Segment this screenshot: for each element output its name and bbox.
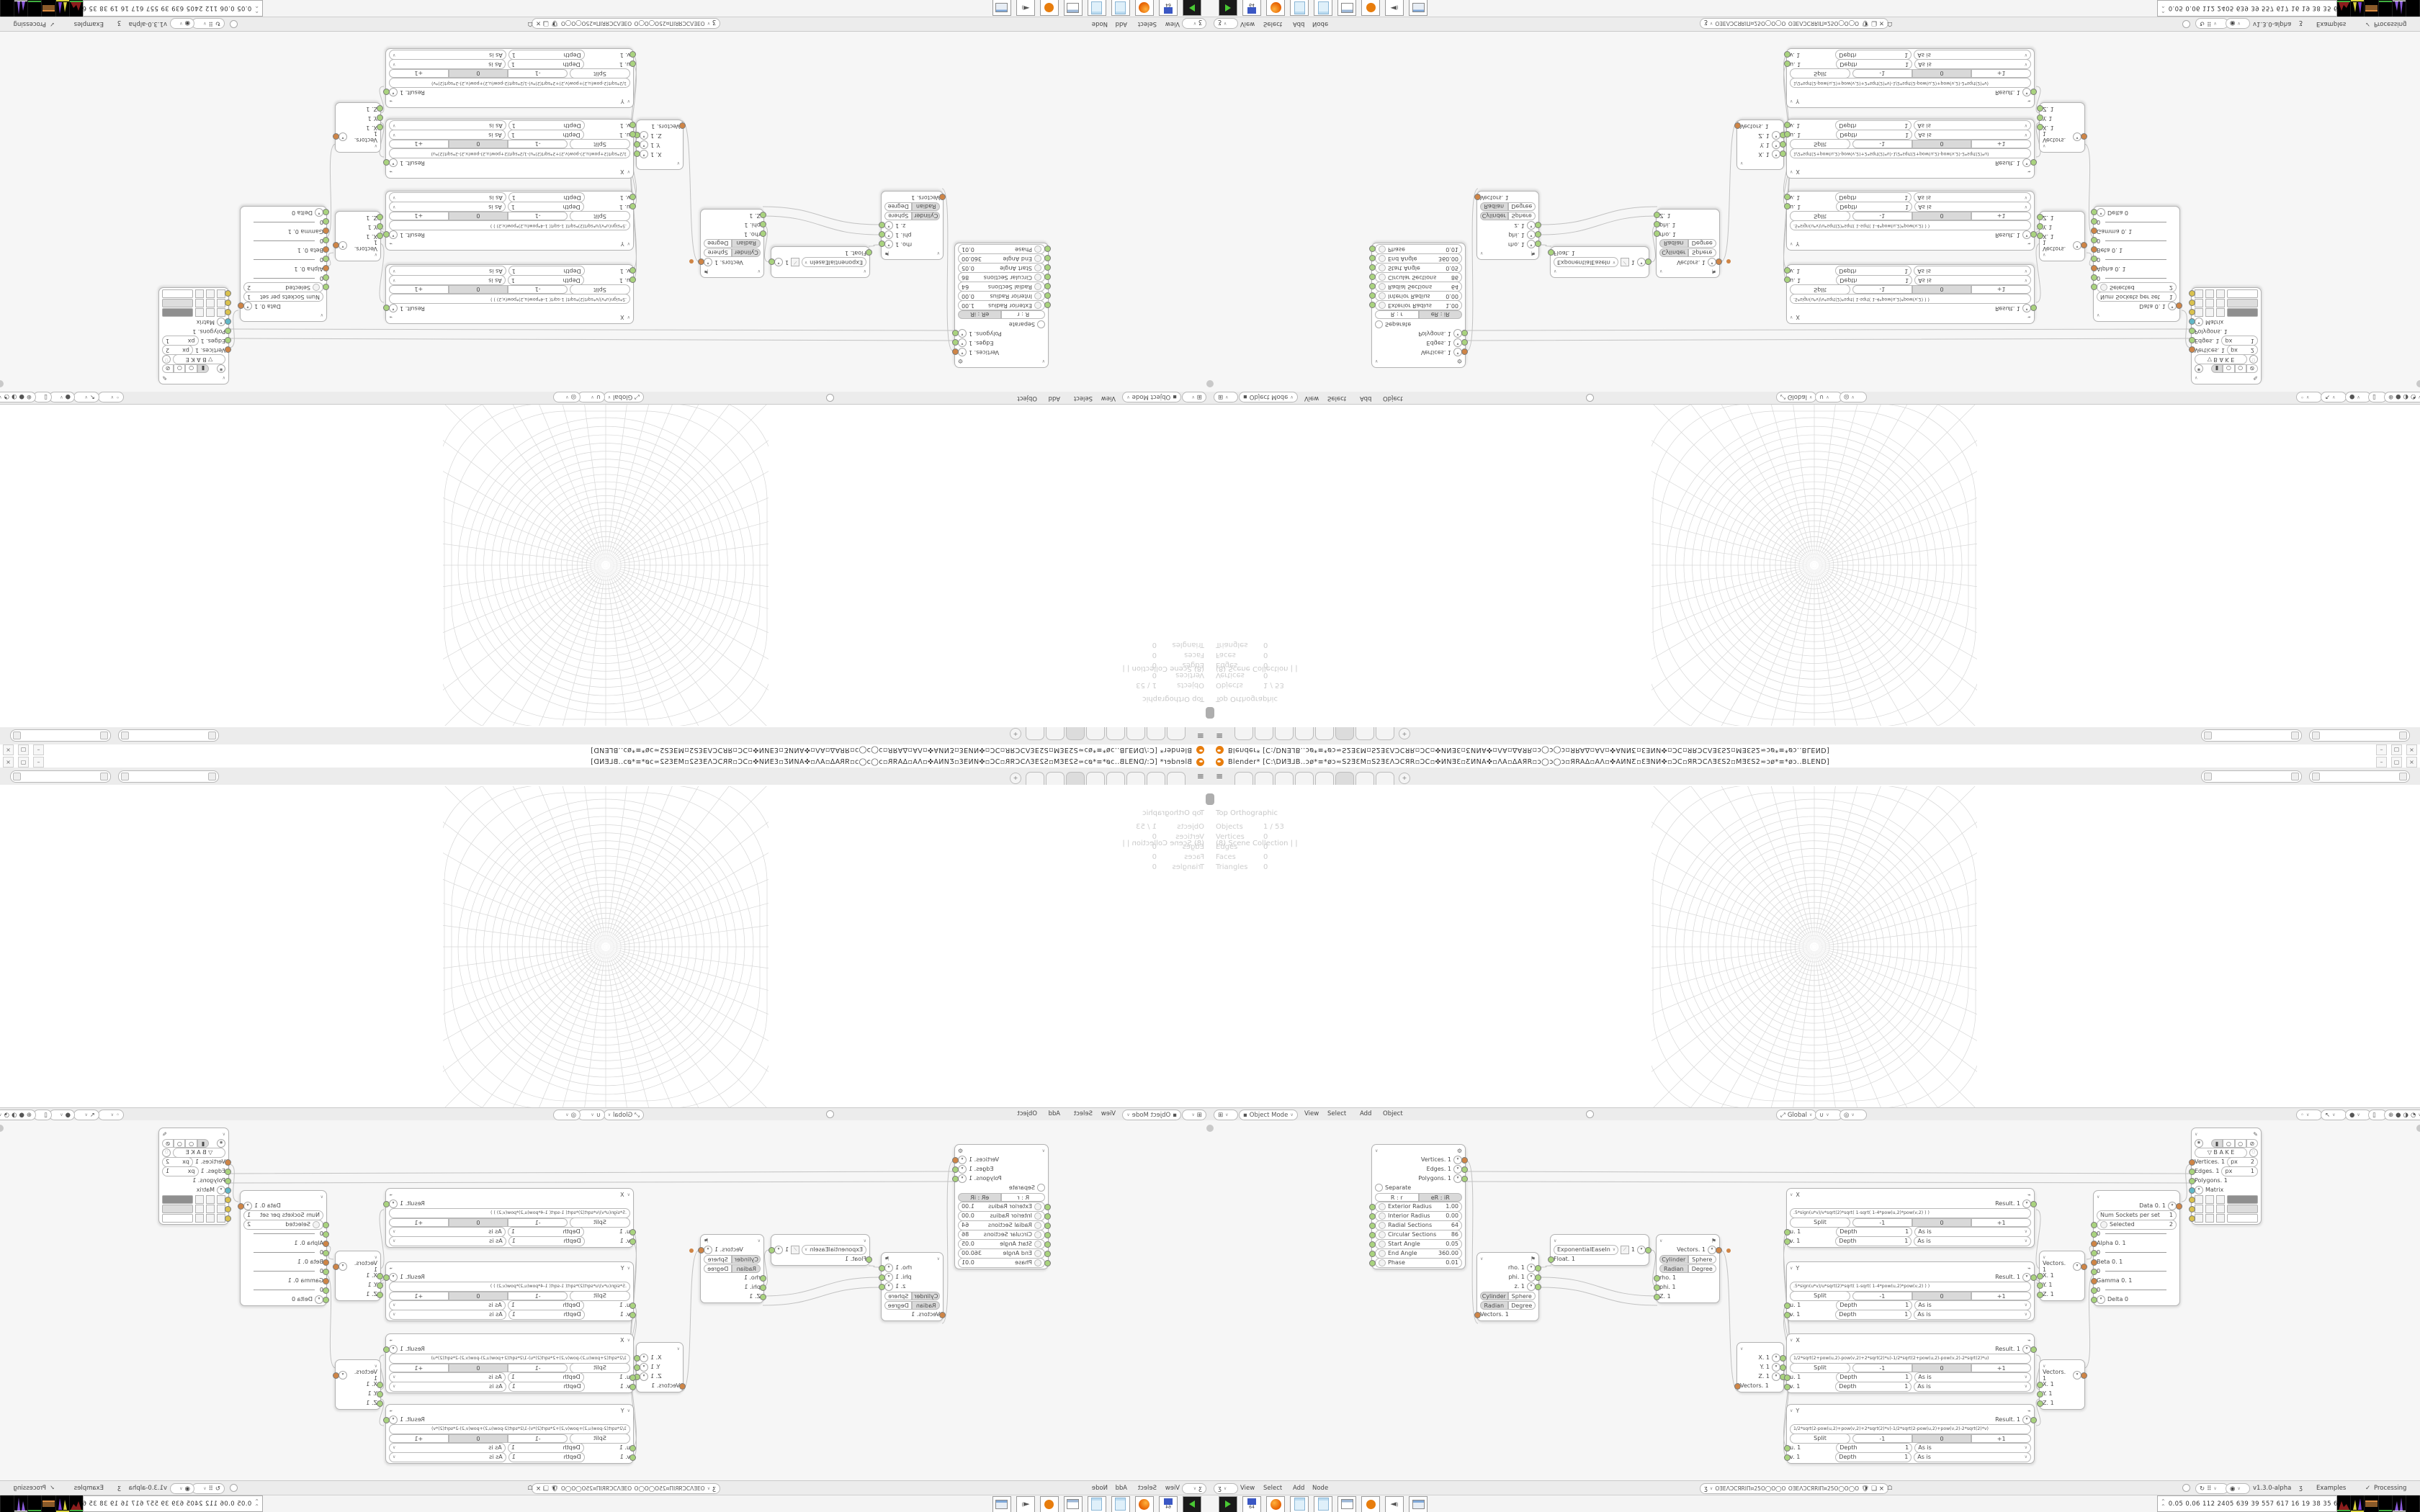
segment-button[interactable]: Sphere — [1508, 212, 1536, 221]
input-socket[interactable] — [629, 276, 636, 283]
node-menu-view[interactable]: View — [1165, 20, 1180, 27]
display-toggle-button[interactable]: ▮ — [2211, 1139, 2223, 1148]
flag-icon[interactable]: ⚑ — [704, 269, 709, 275]
depth-field[interactable]: Depth1 — [508, 276, 584, 286]
as-is-selector[interactable]: As is∨ — [1914, 1382, 2031, 1392]
vector-out-node[interactable]: ∨X. 1▾Y. 1▾Z. 1▾Vectors. 1 — [1736, 1342, 1784, 1392]
input-socket[interactable] — [1784, 1445, 1791, 1452]
number-field[interactable]: Radial Sections64 — [1375, 1220, 1462, 1230]
segment-button[interactable]: Cylinder — [732, 249, 761, 258]
node-menu-node[interactable]: Node — [1312, 20, 1328, 27]
socket-dropdown[interactable]: ▾ — [640, 150, 648, 159]
torus-node[interactable]: ∨⚙Vertices. 1▾Edges. 1▾Polygons. 1▾Separ… — [1371, 243, 1466, 368]
number-field[interactable]: Interior Radius0.00 — [958, 292, 1045, 302]
polygon-color-bar[interactable] — [162, 1214, 193, 1223]
fake-user-icon[interactable]: 🛡 — [551, 1485, 559, 1493]
as-is-selector[interactable]: As is∨ — [1914, 1443, 2031, 1453]
node-tree-selector[interactable]: ʒ∨OƎEΛƆCЯRIΠ¤25O◯O◯O25¤ΠIЯRƆΛƎEOOƎEΛƆCЯR… — [532, 18, 720, 29]
duplicate-icon[interactable]: ❏ — [543, 20, 549, 27]
input-socket[interactable] — [1654, 1284, 1660, 1291]
wrench-icon[interactable]: ⌁ — [2027, 1337, 2031, 1344]
pencil-icon[interactable]: ✎ — [2253, 375, 2258, 382]
easing-node[interactable]: ∨ExponentialEaseIn∨⟋1▾Float. 1 — [771, 246, 870, 278]
input-socket[interactable] — [939, 1312, 946, 1318]
media-player-icon[interactable] — [1183, 1496, 1201, 1512]
segment-button[interactable]: 0 — [1912, 70, 1972, 78]
segment-button[interactable]: Degree — [704, 1264, 732, 1273]
style-cell[interactable] — [206, 1214, 215, 1223]
selected-field[interactable]: Selected2 — [243, 283, 323, 293]
socket-dropdown[interactable]: ▾ — [884, 240, 893, 249]
socket-dropdown[interactable]: ▾ — [389, 1416, 398, 1424]
as-is-selector[interactable]: As is∨ — [389, 1372, 506, 1382]
socket-dropdown[interactable]: ▾ — [2195, 1186, 2203, 1194]
segment-button[interactable]: eR : iR — [1419, 1193, 1463, 1202]
segmented-buttons[interactable]: R : reR : iR — [958, 1193, 1045, 1202]
output-socket[interactable] — [1535, 1265, 1541, 1272]
curve-cell[interactable] — [2216, 1205, 2225, 1213]
vector-polar-input-node[interactable]: ∨⚑Vectors. 1▾CylinderSphereRadianDegreer… — [700, 209, 764, 278]
number-field[interactable]: Exterior Radius1.00 — [958, 301, 1045, 311]
output-socket[interactable] — [2030, 231, 2037, 238]
close-button[interactable]: × — [3, 757, 14, 768]
vector-in-node[interactable]: ∨Vectors. 1▾X. 1Y. 1Z. 1 — [335, 1251, 381, 1301]
as-is-selector[interactable]: As is∨ — [389, 1300, 506, 1310]
as-is-selector[interactable]: As is∨ — [1914, 1452, 2031, 1462]
segment-button[interactable]: Degree — [1688, 240, 1717, 248]
output-socket[interactable] — [952, 1157, 959, 1164]
formula-input-field[interactable]: 1/2*sqrt(2-pow(u,2)+pow(v,2)+2*sqrt(2)*v… — [389, 1424, 630, 1434]
input-socket[interactable] — [323, 1259, 329, 1266]
image-viewer-icon[interactable] — [1337, 1496, 1356, 1512]
minimize-button[interactable]: – — [33, 757, 44, 768]
display-toggles[interactable]: ▮○○⊘ — [162, 1139, 209, 1148]
as-is-selector[interactable]: As is∨ — [389, 202, 506, 212]
duplicate-icon[interactable]: ❏ — [1871, 1485, 1877, 1493]
output-socket[interactable] — [1461, 1157, 1468, 1164]
formula-input-field[interactable]: 1/2*sqrt(2-pow(u,2)+pow(v,2)+2*sqrt(2)*v… — [389, 78, 630, 89]
num-sockets-field[interactable]: Num Sockets per set1 — [2097, 292, 2177, 302]
input-socket[interactable] — [323, 1231, 329, 1238]
input-socket[interactable] — [377, 223, 383, 230]
node-header[interactable]: ∨⚙ — [958, 357, 1045, 366]
display-toggle-button[interactable]: ⊘ — [2246, 1139, 2258, 1148]
depth-field[interactable]: Depth1 — [1836, 1227, 1912, 1237]
vector-polar-input-node[interactable]: ∨⚑Vectors. 1▾CylinderSphereRadianDegreer… — [700, 1234, 764, 1303]
socket-dropdown[interactable]: ▾ — [339, 242, 347, 251]
as-is-selector[interactable]: As is∨ — [1914, 121, 2031, 131]
bake-settings-button[interactable]: ◌ — [2249, 356, 2258, 364]
segment-button[interactable]: -1 — [508, 1434, 568, 1443]
input-socket[interactable] — [1784, 1229, 1791, 1236]
px-field[interactable]: px2 — [162, 346, 193, 356]
formula-node[interactable]: ∨X⌁Result. 1▾1/2*sqrt(2+pow(u,2)-pow(v,2… — [385, 1333, 634, 1393]
style-cell[interactable] — [2205, 290, 2214, 299]
number-field[interactable]: Circular Sections86 — [958, 273, 1045, 283]
output-socket[interactable] — [879, 231, 885, 238]
eye-toggle[interactable]: ◉ — [217, 1139, 225, 1148]
socket-dropdown[interactable]: ▾ — [958, 330, 967, 338]
socket-dropdown[interactable]: ▾ — [389, 159, 398, 168]
notepad-icon[interactable] — [1111, 1496, 1130, 1512]
socket-dropdown[interactable]: ▾ — [958, 348, 967, 357]
notepad-icon[interactable] — [1314, 1496, 1332, 1512]
node-header[interactable]: ∨ — [1740, 159, 1780, 168]
formula-input-field[interactable]: 1/2*sqrt(2+pow(u,2)-pow(v,2)+2*sqrt(2)*u… — [1790, 149, 2031, 159]
input-socket[interactable] — [1044, 1251, 1051, 1257]
fake-user-icon[interactable]: 🛡 — [1861, 1485, 1869, 1493]
node-header[interactable]: ∨⚑ — [704, 267, 761, 276]
number-field[interactable]: Circular Sections86 — [1375, 1230, 1462, 1240]
clamp-segments[interactable]: -10+1 — [389, 70, 568, 78]
segmented-buttons[interactable]: RadianDegree — [1659, 240, 1716, 248]
display-toggle-button[interactable]: ⊘ — [162, 365, 174, 374]
depth-field[interactable]: Depth1 — [1836, 130, 1912, 140]
input-socket[interactable] — [629, 267, 636, 274]
vector-in-node[interactable]: ∨Vectors. 1▾X. 1Y. 1Z. 1 — [335, 211, 381, 261]
blender-app-icon[interactable] — [1361, 1496, 1380, 1512]
style-cell[interactable] — [2205, 1205, 2214, 1213]
number-field[interactable]: Exterior Radius1.00 — [1375, 301, 1462, 311]
style-cell[interactable] — [206, 290, 215, 299]
color-socket[interactable] — [2189, 1215, 2195, 1222]
workspace-tab[interactable] — [1335, 772, 1354, 785]
formula-input-field[interactable]: .5*sign(u*v)/u*sqrt(2)*sqrt( 1-sqrt( 1-4… — [389, 221, 630, 231]
number-field[interactable]: Radial Sections64 — [958, 1220, 1045, 1230]
node-menu-select[interactable]: Select — [1138, 1485, 1157, 1492]
output-socket[interactable] — [383, 1417, 390, 1423]
node-header[interactable]: ∨⚑ — [884, 249, 940, 258]
display-toggle-button[interactable]: ○ — [186, 365, 197, 374]
node-header[interactable]: ∨ — [2097, 1192, 2177, 1201]
depth-field[interactable]: Depth1 — [508, 202, 584, 212]
workspace-tab[interactable] — [1066, 727, 1085, 740]
input-socket[interactable] — [1044, 283, 1051, 289]
edge-color-bar[interactable] — [162, 1195, 193, 1204]
segment-button[interactable]: +1 — [389, 286, 449, 294]
segment-button[interactable]: Degree — [1688, 1264, 1717, 1273]
vector-polar-output-node[interactable]: ∨⚑rho. 1▾phi. 1▾z. 1▾CylinderSphereRadia… — [881, 191, 944, 260]
input-socket[interactable] — [2091, 228, 2097, 234]
scene-selector[interactable] — [118, 729, 219, 742]
px-field[interactable]: px1 — [2221, 1166, 2258, 1176]
input-socket[interactable] — [629, 1454, 636, 1461]
output-socket[interactable] — [879, 1284, 885, 1290]
node-editor[interactable]: ∨⚙Vertices. 1▾Edges. 1▾Polygons. 1▾Separ… — [1210, 32, 2420, 392]
gear-icon[interactable]: ⚙ — [1457, 1148, 1462, 1154]
px-field[interactable]: px2 — [2227, 1157, 2258, 1167]
input-socket[interactable] — [2037, 1282, 2043, 1289]
vertex-color-bar[interactable] — [2227, 300, 2258, 308]
bake-button[interactable]: ▽ B A K E — [173, 1148, 225, 1158]
socket-dropdown[interactable]: ▾ — [958, 1174, 967, 1183]
scene-selector[interactable] — [2201, 729, 2302, 742]
workspace-tab[interactable] — [1234, 727, 1253, 740]
split-button[interactable]: Split — [1790, 1218, 1850, 1228]
node-menu-add[interactable]: Add — [1293, 20, 1304, 27]
display-toggle-button[interactable]: ▮ — [2211, 365, 2223, 374]
edge-color-bar[interactable] — [2227, 309, 2258, 318]
as-is-selector[interactable]: As is∨ — [389, 1443, 506, 1453]
wrench-icon[interactable]: ⌁ — [389, 1265, 393, 1272]
node-header[interactable]: ∨ — [640, 159, 680, 168]
segmented-buttons[interactable]: RadianDegree — [1659, 1264, 1716, 1273]
shading-mode-group[interactable]: ⊕●◑◔∨ — [0, 392, 36, 402]
node-menu-add[interactable]: Add — [1116, 1485, 1127, 1492]
output-socket[interactable] — [1645, 258, 1652, 265]
segment-button[interactable]: +1 — [389, 140, 449, 149]
output-socket[interactable] — [698, 1247, 704, 1254]
gear-icon[interactable]: ⚙ — [958, 359, 963, 365]
as-is-selector[interactable]: As is∨ — [1914, 276, 2031, 286]
style-cell[interactable] — [2205, 309, 2214, 318]
segment-button[interactable]: 0 — [1912, 1364, 1972, 1372]
as-is-selector[interactable]: As is∨ — [389, 121, 506, 131]
segmented-buttons[interactable]: CylinderSphere — [704, 1255, 761, 1264]
output-socket[interactable] — [333, 133, 339, 140]
input-socket[interactable] — [629, 1384, 636, 1390]
workspace-tab[interactable] — [1026, 772, 1044, 785]
input-socket[interactable] — [1784, 51, 1791, 58]
workspace-tab[interactable] — [1295, 772, 1314, 785]
editor-corner-widget[interactable] — [2416, 380, 2420, 387]
as-is-selector[interactable]: As is∨ — [1914, 1310, 2031, 1320]
input-socket[interactable] — [377, 1282, 383, 1289]
input-socket[interactable] — [1044, 255, 1051, 261]
segment-button[interactable]: 0 — [1912, 212, 1972, 221]
volume-icon[interactable]: ◄) — [1385, 0, 1404, 16]
sphere-widget[interactable] — [1586, 1110, 1594, 1118]
input-socket[interactable] — [2091, 265, 2097, 271]
input-socket[interactable] — [2189, 318, 2195, 325]
close-button[interactable]: × — [2406, 744, 2417, 755]
explorer-icon[interactable] — [1409, 0, 1428, 16]
formula-input-field[interactable]: 1/2*sqrt(2+pow(u,2)-pow(v,2)+2*sqrt(2)*u… — [1790, 1354, 2031, 1364]
socket-dropdown[interactable]: ▾ — [2097, 1295, 2105, 1304]
media-player-icon[interactable] — [1183, 0, 1201, 16]
clamp-segments[interactable]: -10+1 — [389, 1218, 568, 1227]
input-socket[interactable] — [323, 1278, 329, 1284]
number-field[interactable]: Start Angle0.05 — [958, 1239, 1045, 1249]
depth-field[interactable]: Depth1 — [508, 60, 584, 70]
input-socket[interactable] — [629, 1312, 636, 1318]
segment-button[interactable]: 0 — [1912, 1292, 1972, 1300]
segment-button[interactable]: Sphere — [1688, 1255, 1717, 1264]
pin-icon[interactable]: ☖ — [527, 1485, 533, 1492]
pin-icon[interactable]: ☖ — [527, 20, 533, 27]
workspace-tab[interactable] — [1147, 772, 1165, 785]
polygon-color-bar[interactable] — [2227, 290, 2258, 299]
firefox-icon[interactable] — [1266, 1496, 1285, 1512]
segment-button[interactable]: -1 — [508, 140, 568, 149]
output-socket[interactable] — [1535, 1274, 1541, 1281]
segment-button[interactable]: +1 — [389, 1434, 449, 1443]
segmented-buttons[interactable]: CylinderSphere — [884, 212, 940, 221]
viewport-menu-select[interactable]: Select — [1327, 395, 1346, 402]
input-socket[interactable] — [2189, 346, 2195, 353]
clamp-segments[interactable]: -10+1 — [1852, 1292, 2031, 1300]
edge-color-bar[interactable] — [162, 309, 193, 318]
input-socket[interactable] — [2091, 1269, 2097, 1275]
segment-button[interactable]: R : r — [1002, 1193, 1046, 1202]
firefox-icon[interactable] — [1135, 1496, 1154, 1512]
gizmo-selector[interactable]: ◦∨ — [98, 1110, 124, 1120]
data-input-node[interactable]: ∨Data 0. 1▾Num Sockets per set1Selected2… — [240, 1190, 327, 1306]
socket-dropdown[interactable]: ▾ — [2195, 318, 2203, 327]
segment-button[interactable]: Cylinder — [1659, 249, 1688, 258]
input-socket[interactable] — [629, 1374, 636, 1381]
output-socket[interactable] — [383, 89, 390, 95]
output-socket[interactable] — [634, 141, 640, 148]
color-socket[interactable] — [2189, 300, 2195, 306]
viewlayer-selector[interactable] — [2309, 770, 2410, 783]
pencil-icon[interactable]: ✎ — [162, 375, 167, 382]
input-socket[interactable] — [225, 1159, 231, 1166]
input-socket[interactable] — [1369, 255, 1376, 261]
split-button[interactable]: Split — [570, 1434, 630, 1444]
input-socket[interactable] — [2037, 1273, 2043, 1279]
formula-node[interactable]: ∨X⌁Result. 1▾.5*sign(u*v)/v*sqrt(2)*sqrt… — [1786, 1188, 2035, 1248]
wrench-icon[interactable]: ⌁ — [389, 99, 393, 105]
input-socket[interactable] — [323, 237, 329, 243]
sphere-widget[interactable] — [826, 394, 834, 402]
segment-button[interactable]: -1 — [508, 212, 568, 221]
num-sockets-field[interactable]: Num Sockets per set1 — [243, 1210, 323, 1220]
blender-app-icon[interactable] — [1361, 0, 1380, 16]
easing-mode-selector[interactable]: ExponentialEaseIn∨ — [802, 258, 866, 268]
socket-dropdown[interactable]: ▾ — [774, 258, 783, 267]
socket-dropdown[interactable]: ▾ — [884, 1273, 893, 1282]
wrench-icon[interactable]: ⌁ — [2027, 241, 2031, 248]
segment-button[interactable]: Sphere — [704, 1255, 732, 1264]
segment-button[interactable]: Radian — [1659, 1264, 1688, 1273]
formula-node[interactable]: ∨X⌁Result. 1▾.5*sign(u*v)/v*sqrt(2)*sqrt… — [385, 1188, 634, 1248]
input-socket[interactable] — [323, 209, 329, 215]
display-toggle-button[interactable]: ○ — [174, 365, 185, 374]
debugger-64-icon[interactable]: 64 — [1242, 1496, 1261, 1512]
node-header[interactable]: ∨X⌁ — [389, 168, 630, 176]
output-socket[interactable] — [879, 1265, 885, 1272]
depth-field[interactable]: Depth1 — [508, 1452, 585, 1462]
node-header[interactable]: ∨ — [1554, 1236, 1646, 1245]
segment-button[interactable]: Sphere — [884, 212, 913, 221]
node-menu-node[interactable]: Node — [1312, 1485, 1328, 1492]
segment-button[interactable]: Degree — [884, 203, 913, 212]
torus-node[interactable]: ∨⚙Vertices. 1▾Edges. 1▾Polygons. 1▾Separ… — [1371, 1144, 1466, 1269]
tree-type-selector[interactable]: ʒ∨ — [1182, 18, 1206, 29]
segment-button[interactable]: 0 — [1912, 286, 1972, 294]
workspace-tab[interactable] — [1275, 727, 1294, 740]
dropdown-icon[interactable] — [2100, 1221, 2107, 1228]
scene-selector[interactable] — [2201, 770, 2302, 783]
node-header[interactable]: ∨⚑ — [704, 1236, 761, 1245]
debugger-64-icon[interactable]: 64 — [1159, 1496, 1178, 1512]
formula-node[interactable]: ∨X⌁Result. 1▾.5*sign(u*v)/v*sqrt(2)*sqrt… — [385, 264, 634, 324]
segment-button[interactable]: -1 — [508, 1218, 568, 1227]
input-socket[interactable] — [1044, 1223, 1051, 1229]
input-socket[interactable] — [2091, 256, 2097, 262]
proportional-edit-selector[interactable]: ◎∨ — [553, 392, 581, 402]
input-socket[interactable] — [760, 212, 766, 218]
segment-button[interactable]: 0 — [449, 286, 508, 294]
sphere-widget[interactable] — [826, 1110, 834, 1118]
number-field[interactable]: Start Angle0.05 — [958, 264, 1045, 274]
depth-field[interactable]: Depth1 — [508, 1443, 584, 1453]
node-header[interactable]: ∨X⌁ — [1790, 1190, 2031, 1199]
segment-button[interactable]: +1 — [389, 212, 449, 221]
output-socket[interactable] — [2030, 1417, 2037, 1423]
output-socket[interactable] — [2081, 1372, 2087, 1379]
depth-field[interactable]: Depth1 — [1836, 1443, 1912, 1453]
close-button[interactable]: × — [3, 744, 14, 755]
input-socket[interactable] — [225, 1169, 231, 1175]
as-is-selector[interactable]: As is∨ — [389, 1236, 506, 1246]
menu-hamburger-icon[interactable]: ≡ — [1216, 731, 1223, 741]
input-socket[interactable] — [377, 214, 383, 220]
input-socket[interactable] — [377, 105, 383, 112]
node-header[interactable]: ∨ — [640, 1344, 680, 1353]
style-cell[interactable] — [2205, 300, 2214, 308]
maximize-button[interactable]: ▢ — [18, 744, 29, 755]
explorer-icon[interactable] — [992, 1496, 1011, 1512]
input-socket[interactable] — [323, 265, 329, 271]
fake-user-icon[interactable]: 🛡 — [1861, 20, 1869, 27]
wrench-icon[interactable]: ⌁ — [2027, 1408, 2031, 1414]
input-socket[interactable] — [2091, 209, 2097, 215]
segment-button[interactable]: eR : iR — [958, 1193, 1002, 1202]
input-socket[interactable] — [377, 1382, 383, 1388]
overlays-selector[interactable]: ↖∨ — [2321, 392, 2347, 402]
input-socket[interactable] — [2091, 284, 2097, 290]
pencil-icon[interactable]: ✎ — [2253, 1131, 2258, 1138]
input-socket[interactable] — [2037, 1400, 2043, 1407]
node-header[interactable]: ∨⚙ — [1375, 1146, 1462, 1155]
input-socket[interactable] — [866, 249, 872, 256]
tree-update-selector[interactable]: ↻⠿∨ — [2195, 18, 2228, 29]
proportional-edit-selector[interactable]: ◎∨ — [1839, 392, 1867, 402]
segment-button[interactable]: eR : iR — [1419, 311, 1463, 320]
px-field[interactable]: px1 — [2221, 336, 2258, 346]
segmented-buttons[interactable]: CylinderSphere — [1659, 249, 1716, 258]
workspace-tab[interactable] — [1275, 772, 1294, 785]
split-button[interactable]: Split — [1790, 212, 1850, 222]
split-button[interactable]: Split — [1790, 1363, 1850, 1373]
socket-dropdown[interactable]: ▾ — [704, 1246, 712, 1254]
socket-dropdown[interactable]: ▾ — [2097, 209, 2105, 217]
output-socket[interactable] — [1461, 330, 1468, 336]
swatch-cell[interactable] — [2195, 1214, 2203, 1223]
input-socket[interactable] — [629, 203, 636, 210]
segment-button[interactable]: Sphere — [1508, 1292, 1536, 1300]
input-socket[interactable] — [1784, 131, 1791, 138]
segment-button[interactable]: Cylinder — [1480, 1292, 1508, 1300]
output-socket[interactable] — [383, 1201, 390, 1207]
viewport-menu-add[interactable]: Add — [1360, 395, 1371, 402]
display-toggle-button[interactable]: ⊘ — [162, 1139, 174, 1148]
formula-input-field[interactable]: .5*sign(u*v)/v*sqrt(2)*sqrt( 1-sqrt( 1-4… — [1790, 294, 2031, 305]
media-player-icon[interactable] — [1219, 1496, 1237, 1512]
viewport-menu-select[interactable]: Select — [1074, 395, 1093, 402]
output-socket[interactable] — [383, 305, 390, 311]
output-socket[interactable] — [333, 1264, 339, 1270]
segment-button[interactable]: +1 — [1971, 1434, 2031, 1443]
style-cell[interactable] — [206, 300, 215, 308]
input-socket[interactable] — [1784, 1384, 1791, 1390]
input-socket[interactable] — [629, 51, 636, 58]
node-header[interactable]: ∨ — [774, 1236, 866, 1245]
as-is-selector[interactable]: As is∨ — [389, 276, 506, 286]
wrench-icon[interactable]: ⌁ — [389, 1192, 393, 1198]
